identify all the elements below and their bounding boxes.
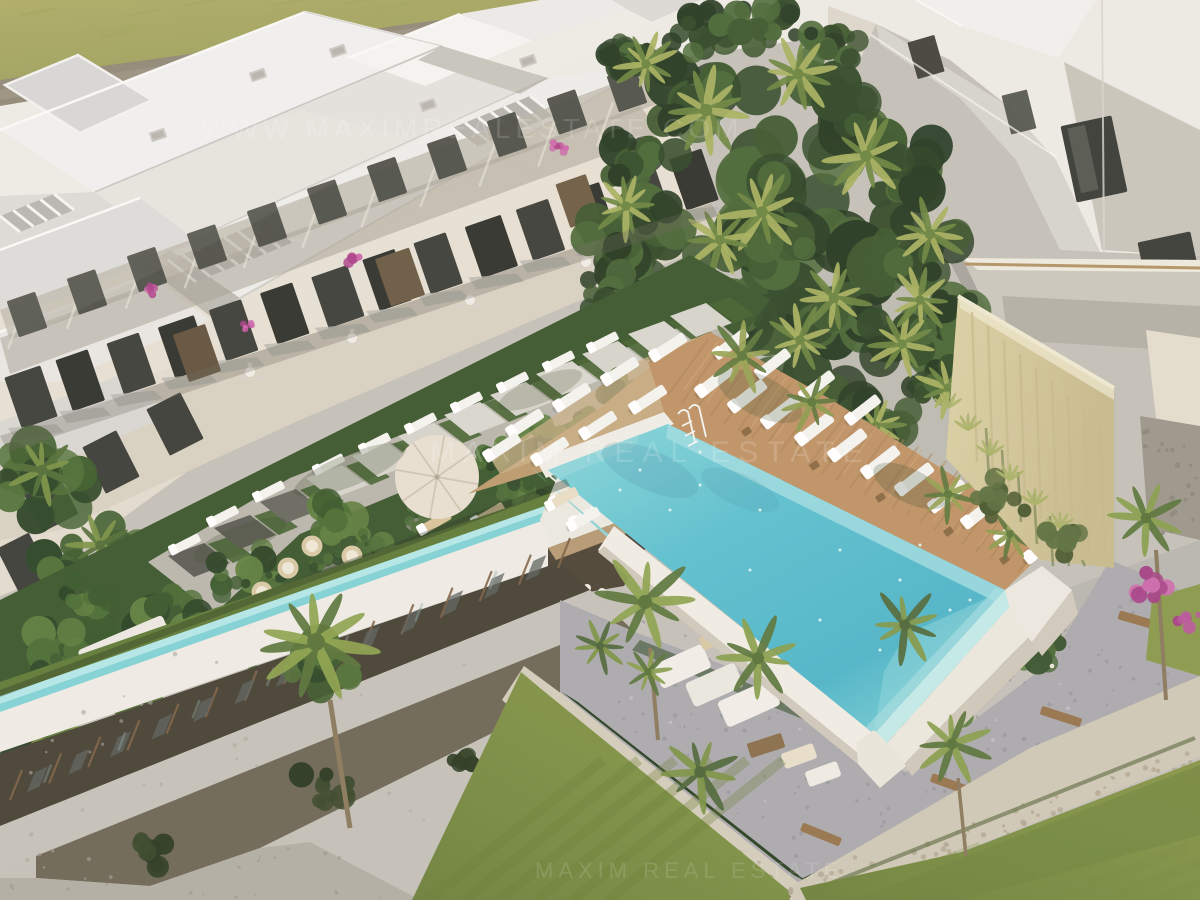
svg-text:MAXIM REAL ESTATE: MAXIM REAL ESTATE: [535, 858, 843, 883]
svg-text:WWW.MAXIMREALESTATE.COM: WWW.MAXIMREALESTATE.COM: [200, 113, 743, 144]
svg-text:MAXIM REAL ESTATE: MAXIM REAL ESTATE: [430, 436, 871, 469]
